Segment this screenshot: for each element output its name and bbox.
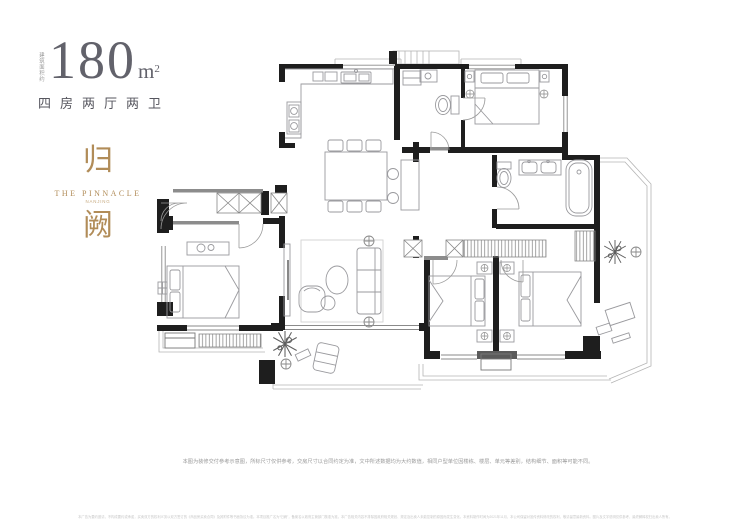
plant — [604, 240, 626, 264]
brand-char-bottom: 阙 — [52, 211, 144, 241]
bedroom-left — [158, 242, 239, 318]
kitchen-fixtures — [285, 69, 421, 210]
brand-name-en: THE PINNACLE — [52, 189, 144, 198]
coffee-table — [326, 266, 348, 294]
dining-set — [325, 140, 387, 212]
area-value: 180 — [49, 38, 136, 82]
bedroom-bottom-middle — [429, 262, 492, 342]
area-prefix-label: 建筑面积约 — [38, 52, 46, 82]
bar-stool — [388, 169, 399, 180]
dining-table — [325, 152, 387, 200]
kitchen-island — [401, 160, 419, 210]
washbasin — [420, 70, 437, 82]
toilet-tank — [497, 162, 511, 169]
bedroom-bottom-right — [500, 262, 581, 342]
disclaimer-text: 本图为装修交付参考示意图，所标尺寸仅供参考，交房尺寸以合同约定为准，文中所述数据… — [183, 457, 568, 465]
terrace-right — [596, 240, 641, 343]
floorplan-drawing — [143, 46, 655, 410]
bathtub — [566, 160, 592, 216]
nightstand — [465, 71, 474, 82]
toilet — [451, 96, 459, 114]
nightstand — [540, 71, 549, 82]
brand-char-top: 归 — [52, 146, 144, 176]
balcony-center — [273, 331, 339, 374]
desk — [605, 302, 635, 325]
bathroom-small — [420, 70, 459, 115]
floorplan-page: 建筑面积约 180 m2 四房两厅两卫 归 THE PINNACLE NANJI… — [0, 0, 750, 525]
brand-subtitle: NANJING — [73, 199, 124, 204]
wardrobes — [199, 193, 595, 347]
bar-stool — [388, 193, 399, 204]
plant — [273, 331, 296, 357]
living-room — [284, 236, 383, 327]
fineprint-text: 本广告为要约邀请，不构成要约或承诺，买卖双方的权利义务以双方签订的《商品房买卖合… — [52, 514, 699, 519]
rug — [301, 240, 383, 322]
bedroom-top-right — [465, 70, 549, 124]
brand-block: 归 THE PINNACLE NANJING 阙 — [52, 146, 144, 241]
lobby-wall — [389, 51, 397, 64]
armchair — [299, 286, 325, 312]
lounge-chair — [312, 342, 339, 374]
bathroom-master — [497, 160, 592, 216]
sofa — [357, 248, 381, 314]
